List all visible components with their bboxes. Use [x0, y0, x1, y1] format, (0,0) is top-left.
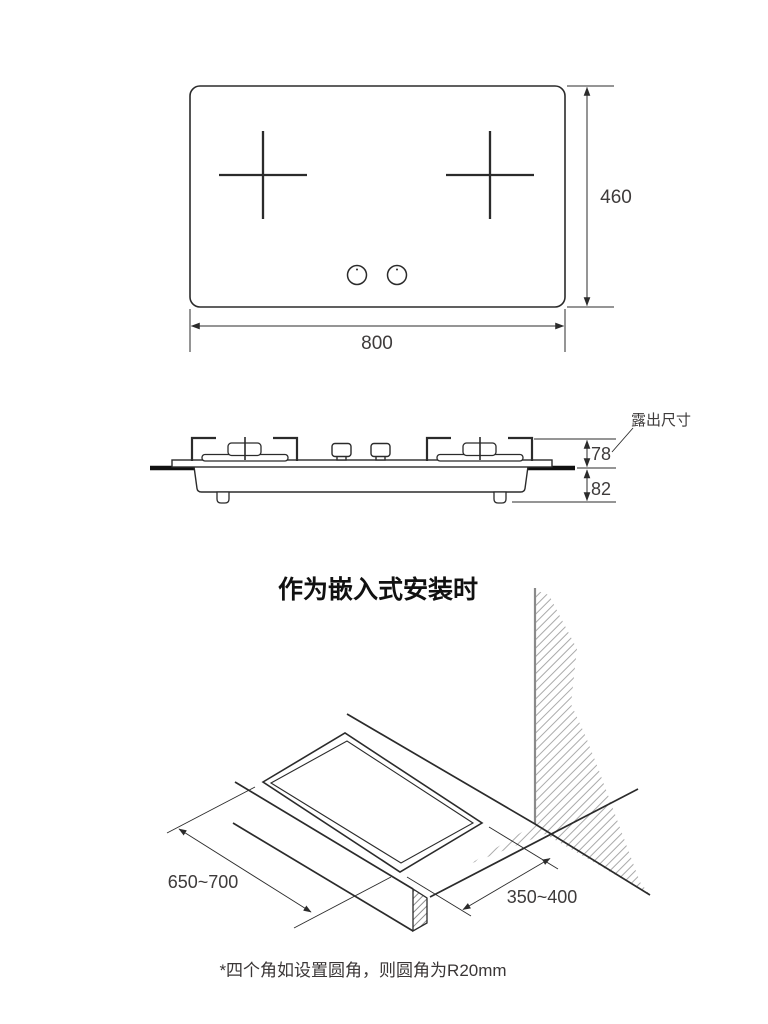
installation-title: 作为嵌入式安装时: [278, 578, 478, 603]
right-burner-side: [427, 437, 532, 461]
cutout-opening-outer: [263, 733, 482, 872]
cooktop-dimension-diagram: [0, 0, 768, 1024]
top-view: [190, 86, 614, 352]
height-dimension-label: 460: [600, 188, 632, 207]
knobs-side: [332, 444, 390, 461]
side-view: [150, 428, 633, 503]
width-dimension-label: 800: [361, 334, 393, 353]
wall-hatching: [470, 590, 650, 895]
cooktop-body-side: [194, 467, 528, 493]
left-foot: [217, 492, 229, 503]
cooktop-panel-outline: [190, 86, 565, 307]
corner-radius-footnote: *四个角如设置圆角，则圆角为R20mm: [219, 962, 506, 979]
cutout-depth-label: 350~400: [507, 888, 578, 906]
cutout-length-label: 650~700: [168, 873, 239, 891]
right-foot: [494, 492, 506, 503]
exposed-dim-leader: [612, 428, 633, 452]
installation-view: [167, 588, 650, 931]
above-counter-dimension-label: 78: [591, 445, 611, 463]
exposed-dimension-label: 露出尺寸: [631, 413, 691, 428]
left-burner-side: [192, 437, 297, 461]
dimension-drawing-page: 460 800 露出尺寸 78 82 作为嵌入式安装时 650~700 350~…: [0, 0, 768, 1024]
counter-cross-section: [413, 889, 427, 931]
below-counter-dimension-label: 82: [591, 480, 611, 498]
